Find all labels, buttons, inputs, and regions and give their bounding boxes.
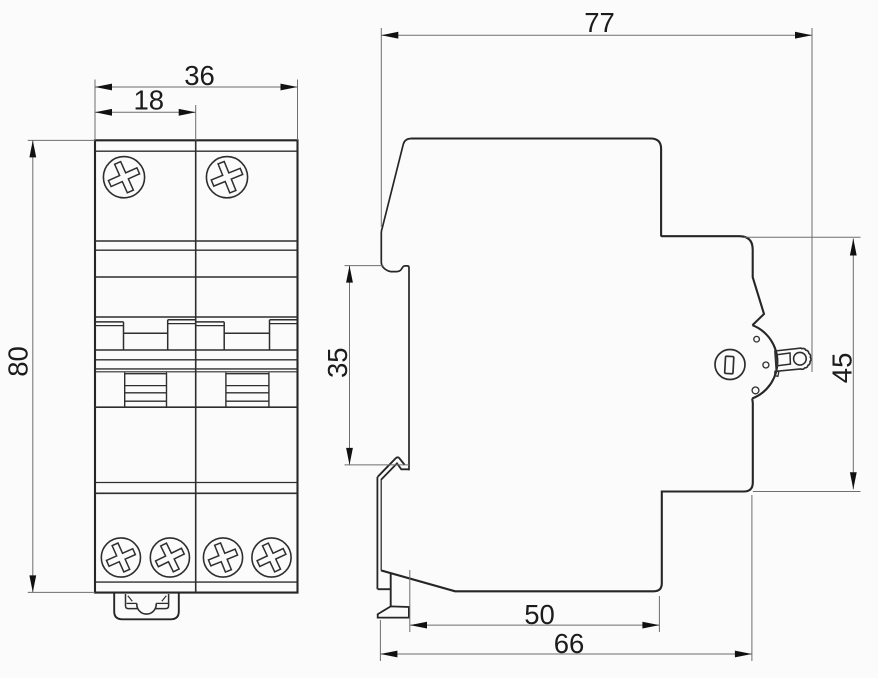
svg-text:18: 18	[134, 85, 165, 116]
svg-text:35: 35	[322, 347, 353, 378]
svg-text:50: 50	[524, 599, 555, 630]
svg-text:36: 36	[184, 60, 215, 91]
svg-text:80: 80	[3, 346, 34, 377]
svg-text:66: 66	[554, 628, 585, 659]
svg-text:77: 77	[584, 7, 615, 38]
svg-text:45: 45	[827, 353, 858, 384]
